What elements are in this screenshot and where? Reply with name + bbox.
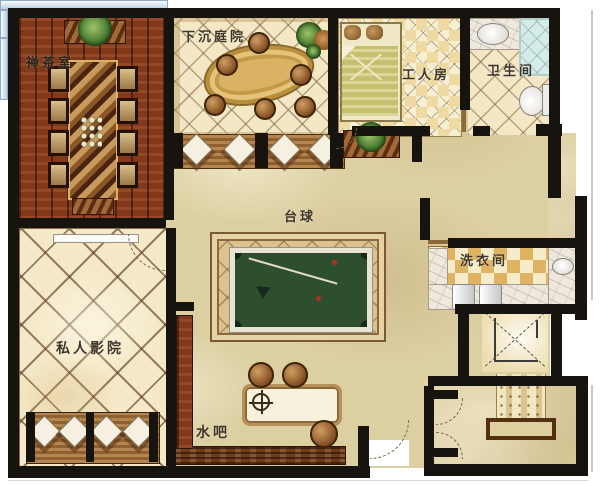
laundry-label: 洗衣间	[460, 250, 508, 269]
billiard-ball	[316, 296, 321, 301]
chair	[48, 130, 69, 156]
chair	[117, 162, 138, 188]
garden-stool	[204, 94, 226, 116]
garden-stool	[254, 98, 276, 120]
sofa-post	[26, 412, 35, 462]
wall-segment	[328, 8, 338, 135]
wall-segment	[8, 8, 560, 18]
bed-pillow	[366, 25, 383, 40]
wall-segment	[164, 8, 174, 220]
wall-segment	[548, 136, 561, 198]
cinema-label: 私人影院	[56, 338, 124, 358]
stair-landing	[486, 418, 556, 440]
bathroom-label: 卫生间	[487, 60, 535, 79]
page-edge-line	[8, 480, 588, 481]
wall-segment	[428, 376, 578, 386]
wall-segment	[8, 8, 19, 478]
wall-segment	[448, 238, 576, 248]
water-bar-label: 水吧	[196, 422, 230, 442]
compass-icon	[252, 393, 270, 411]
wall-segment	[536, 124, 562, 136]
laundry-counter-right	[548, 246, 578, 310]
chair	[117, 130, 138, 156]
wall-segment	[575, 196, 587, 320]
floor-plan: 禅茶室 下沉庭院 工人房 卫生间 私人影院	[0, 0, 600, 485]
chair	[48, 162, 69, 188]
wall-segment	[460, 8, 470, 110]
table-runner-flowers	[80, 116, 102, 148]
bench-post	[255, 133, 268, 168]
garden-stool	[216, 54, 238, 76]
garden-stool	[294, 96, 316, 118]
hall-cabinet	[176, 315, 193, 449]
wall-segment	[358, 426, 369, 478]
window-slit	[0, 38, 8, 100]
window-slit	[0, 10, 8, 38]
wall-segment	[424, 464, 588, 476]
wall-segment	[549, 8, 560, 133]
wall-segment	[424, 386, 434, 470]
tea-room-label: 禅茶室	[26, 52, 74, 71]
sofa-post	[149, 412, 158, 462]
bar-stool	[282, 362, 308, 388]
bar-counter	[174, 446, 346, 465]
billiards-label: 台球	[284, 206, 316, 225]
wall-segment	[166, 228, 176, 468]
door-leaf	[462, 110, 466, 132]
chair	[117, 66, 138, 92]
garden-stool	[290, 64, 312, 86]
worker-room-label: 工人房	[402, 64, 450, 83]
door-leaf	[428, 240, 448, 244]
wall-segment	[458, 304, 469, 382]
wall-segment	[8, 466, 370, 478]
sink-icon	[477, 23, 509, 45]
wall-segment	[420, 198, 430, 240]
tea-bench-end	[72, 198, 114, 215]
wall-segment	[8, 218, 166, 228]
sofa-post	[86, 412, 94, 462]
cinema-screen	[53, 234, 139, 243]
wall-segment	[576, 376, 588, 476]
bed-pillow	[344, 25, 361, 40]
wall-segment	[166, 302, 194, 311]
chair	[48, 98, 69, 124]
wall-segment	[551, 304, 562, 380]
courtyard-label: 下沉庭院	[182, 26, 246, 45]
bar-stool	[310, 420, 338, 448]
wall-segment	[412, 126, 422, 162]
plant-icon	[306, 44, 321, 59]
wall-segment	[473, 126, 490, 136]
garden-stool	[248, 32, 270, 54]
page-edge-line	[591, 10, 593, 472]
chair	[117, 98, 138, 124]
billiard-ball	[332, 260, 337, 265]
billiard-table	[230, 248, 372, 332]
bar-stool	[248, 362, 274, 388]
sink-icon	[552, 258, 574, 275]
elevator-inner-frame	[536, 320, 538, 338]
bed-blanket	[342, 46, 398, 116]
